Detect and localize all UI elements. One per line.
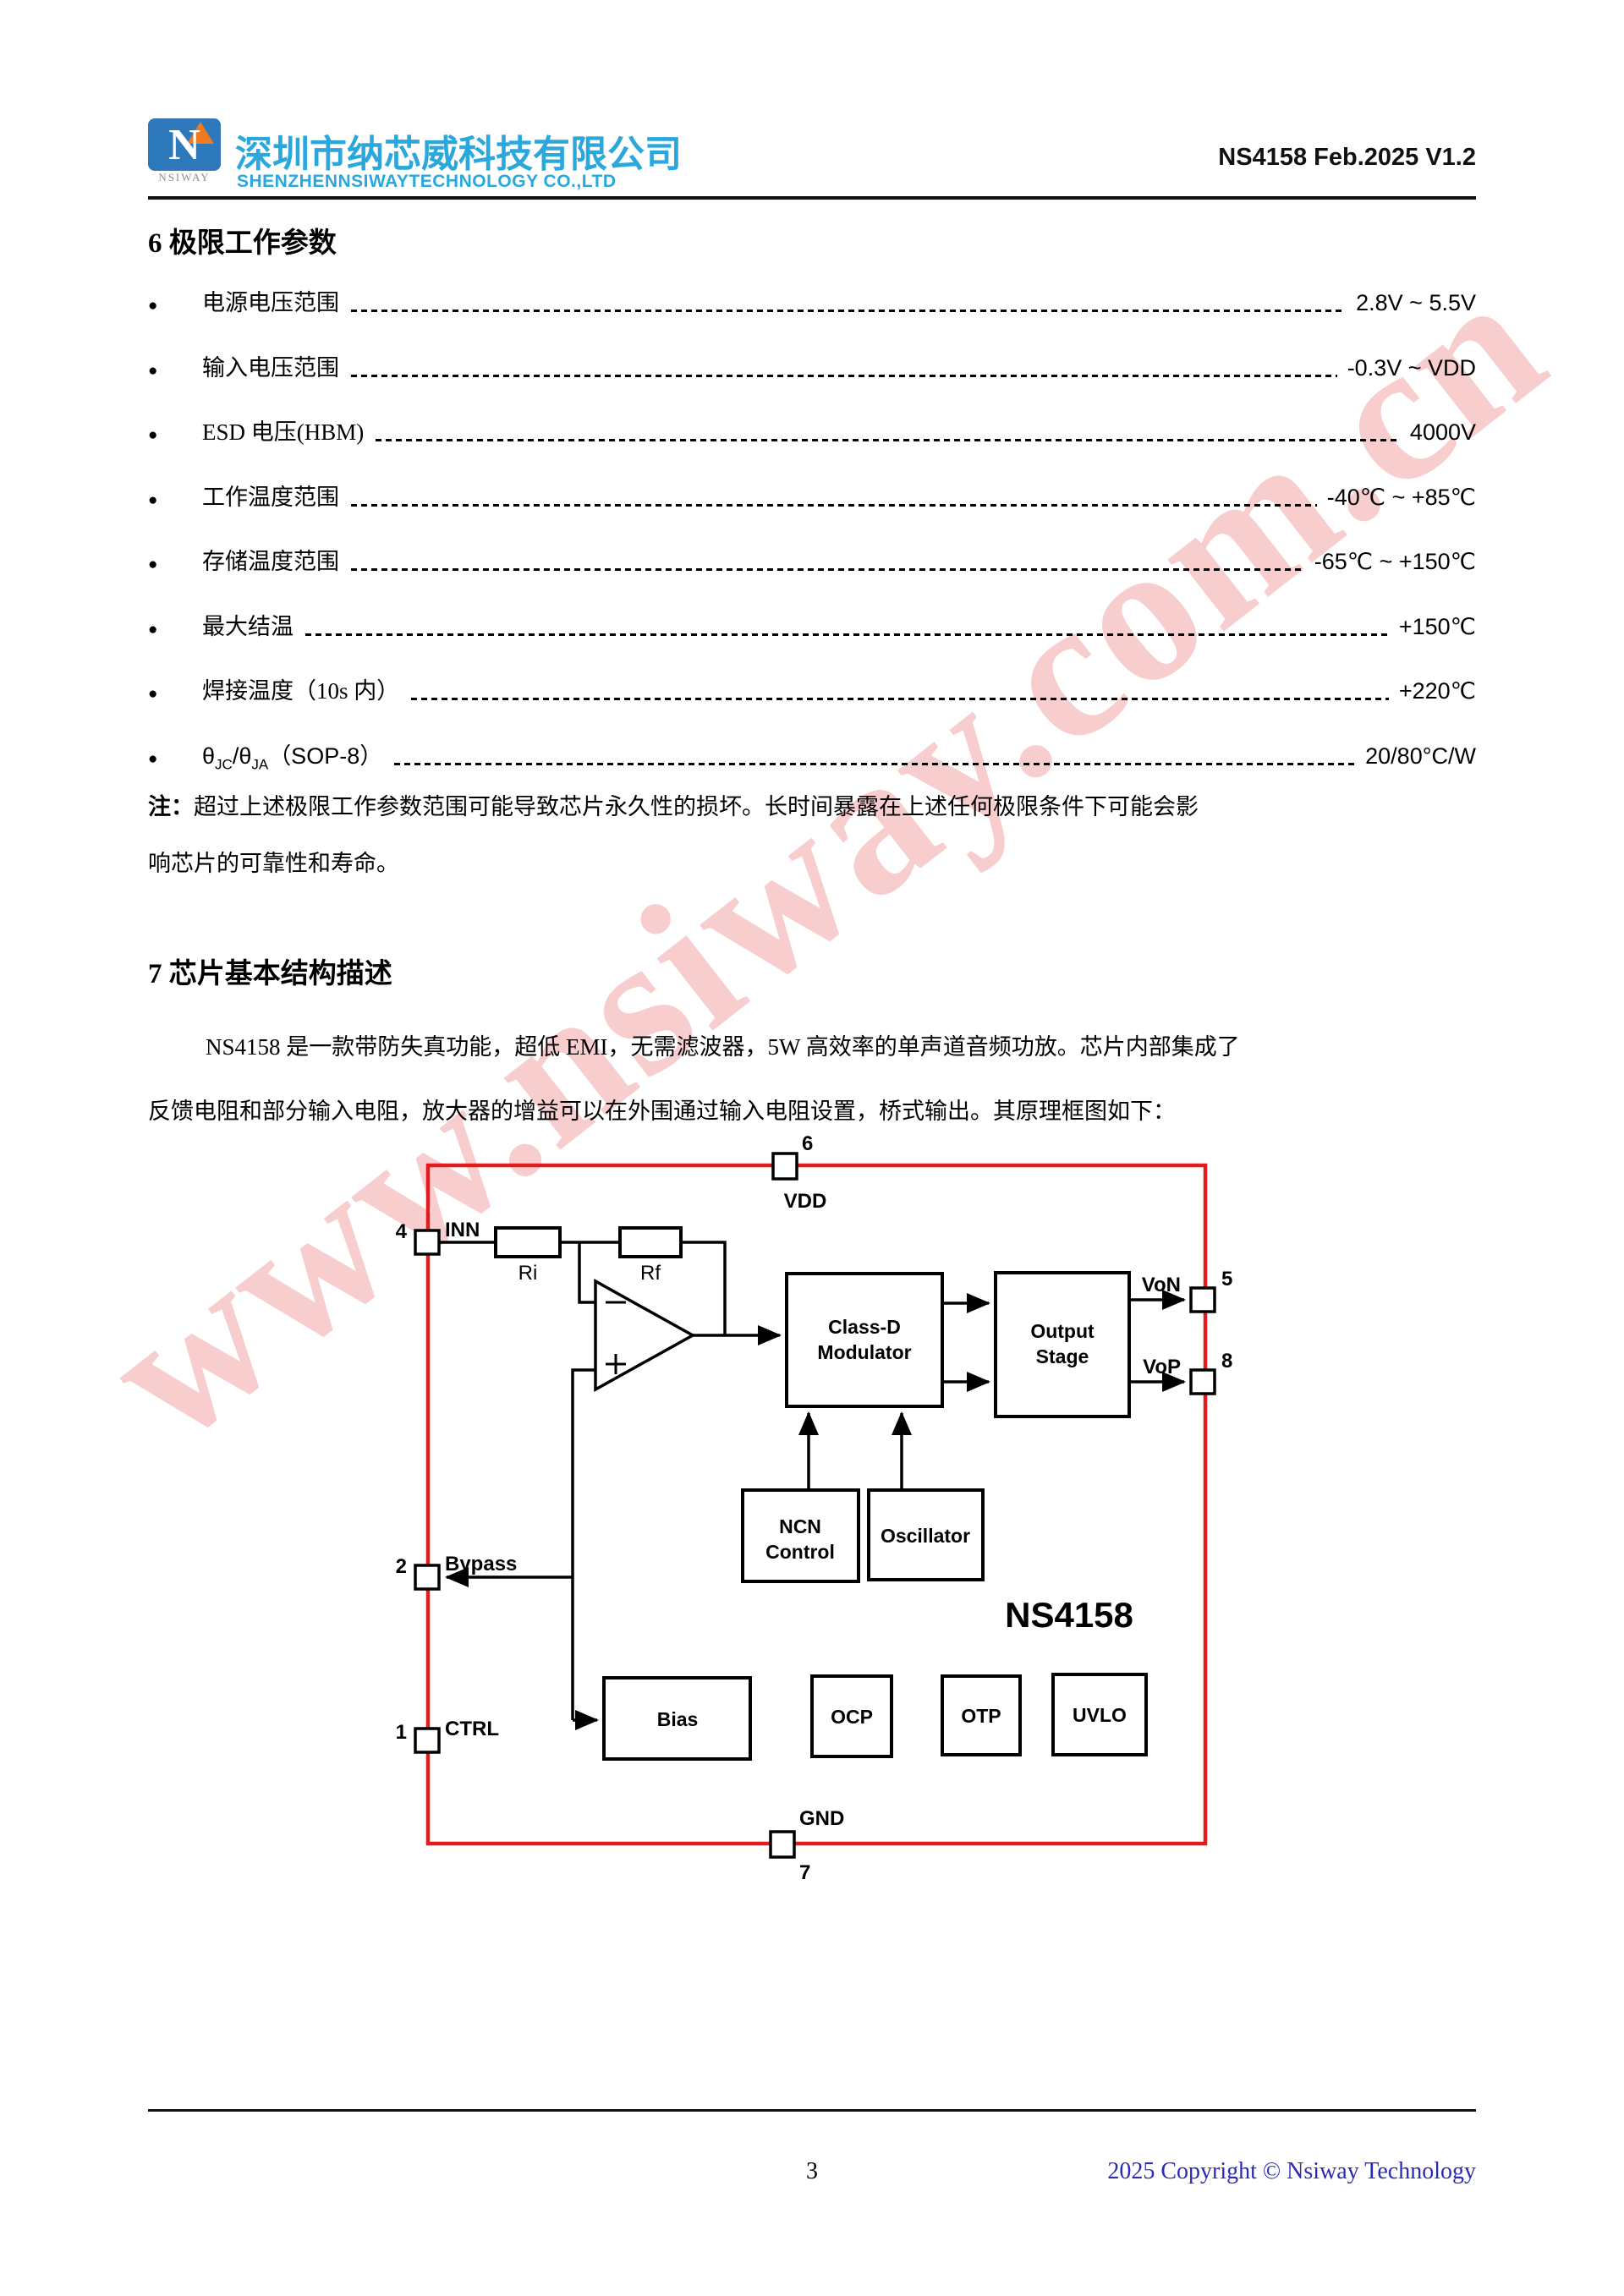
rating-label: 电源电压范围 [202,284,339,317]
rating-value: +220℃ [1399,678,1476,704]
pin-ctrl-label: CTRL [445,1718,499,1740]
pin-gnd: GND 7 [771,1807,844,1884]
pin-bypass: 2 Bypass [396,1553,518,1589]
resistor-ri [496,1228,560,1257]
rating-value: 2.8V ~ 5.5V [1356,290,1476,316]
rating-value: 20/80°C/W [1365,743,1476,770]
dotted-leader [351,504,1317,507]
section7-paragraph-line1: NS4158 是一款带防失真功能，超低 EMI，无需滤波器，5W 高效率的单声道… [206,1032,1483,1063]
block-classd-modulator [787,1274,942,1406]
dotted-leader [305,633,1389,636]
rating-row: ● 最大结温 +150℃ [148,589,1476,655]
pin-inn: 4 INN [396,1219,480,1254]
pin-bypass-label: Bypass [445,1553,517,1575]
pin-vop-number: 8 [1221,1350,1232,1373]
resistor-rf-label: Rf [640,1262,661,1285]
ratings-note-line2: 响芯片的可靠性和寿命。 [148,848,1480,879]
block-uvlo-label: UVLO [1073,1704,1127,1726]
doc-version: NS4158 Feb.2025 V1.2 [1218,144,1476,172]
copyright-text: 2025 Copyright © Nsiway Technology [1107,2158,1476,2185]
note-prefix: 注： [148,794,194,819]
pin-von: 5 VoN [1142,1268,1233,1312]
rating-value: -65℃ ~ +150℃ [1314,549,1476,575]
rating-label: ESD 电压(HBM) [202,414,364,447]
resistor-ri-label: Ri [518,1262,538,1285]
rating-label: 工作温度范围 [202,479,339,512]
pin-inn-label: INN [445,1219,480,1241]
logo-caption: NSIWAY [148,171,221,184]
rating-row: ● θJC/θJA（SOP-8） 20/80°C/W [148,719,1476,784]
ratings-note-line1: 注：超过上述极限工作参数范围可能导致芯片永久性的损坏。长时间暴露在上述任何极限条… [148,792,1480,823]
block-bias-label: Bias [657,1708,699,1730]
rating-row: ● 电源电压范围 2.8V ~ 5.5V [148,266,1476,331]
dotted-leader [394,763,1355,765]
rating-value: -40℃ ~ +85℃ [1327,485,1476,511]
pin-bypass-number: 2 [396,1555,407,1578]
rating-label: 焊接温度（10s 内） [202,672,399,705]
block-otp-label: OTP [961,1705,1001,1727]
bullet-icon: ● [148,556,202,574]
company-logo: N NSIWAY [148,118,221,184]
bullet-icon: ● [148,426,202,445]
bullet-icon: ● [148,491,202,510]
rating-label: 输入电压范围 [202,349,339,382]
rating-label: 最大结温 [202,608,294,641]
rating-row: ● 存储温度范围 -65℃ ~ +150℃ [148,524,1476,589]
pin-gnd-label: GND [799,1807,844,1830]
opamp-symbol [595,1281,693,1389]
resistor-rf [620,1228,681,1257]
dotted-leader [351,310,1346,312]
pin-von-label: VoN [1142,1274,1181,1296]
pin-vdd: 6 VDD [773,1132,826,1213]
pin-ctrl-number: 1 [396,1721,407,1744]
bullet-icon: ● [148,621,202,639]
rating-row: ● 工作温度范围 -40℃ ~ +85℃ [148,460,1476,525]
block-output-stage [996,1273,1129,1417]
section7-paragraph-line2: 反馈电阻和部分输入电阻，放大器的增益可以在外围通过输入电阻设置，桥式输出。其原理… [148,1096,1483,1127]
bullet-icon: ● [148,685,202,704]
company-name-en: SHENZHENNSIWAYTECHNOLOGY CO.,LTD [237,172,616,192]
rating-row: ● 输入电压范围 -0.3V ~ VDD [148,331,1476,396]
pin-vdd-label: VDD [784,1190,827,1213]
section7-title: 7 芯片基本结构描述 [148,951,392,991]
pin-vop-label: VoP [1143,1356,1181,1378]
rating-label: 存储温度范围 [202,543,339,576]
rating-row: ● ESD 电压(HBM) 4000V [148,395,1476,460]
dotted-leader [376,439,1400,441]
block-output-label-line2: Stage [1036,1345,1089,1367]
dotted-leader [411,698,1389,700]
bullet-icon: ● [148,362,202,381]
block-classd-label-line2: Modulator [817,1341,911,1363]
footer-rule [148,2109,1476,2112]
pin-gnd-number: 7 [799,1861,810,1884]
bullet-icon: ● [148,297,202,315]
header-rule [148,196,1476,200]
block-ncn-label-line2: Control [765,1541,835,1563]
rating-value: -0.3V ~ VDD [1347,355,1476,381]
rating-row: ● 焊接温度（10s 内） +220℃ [148,654,1476,719]
pin-ctrl: 1 CTRL [396,1718,499,1752]
pin-vop: 8 VoP [1143,1350,1232,1394]
block-ocp-label: OCP [831,1706,873,1728]
dotted-leader [351,568,1304,571]
pin-von-number: 5 [1221,1268,1232,1290]
block-output-label-line1: Output [1030,1320,1095,1342]
rating-value: +150℃ [1399,614,1476,640]
company-name-cn: 深圳市纳芯威科技有限公司 [235,123,682,178]
datasheet-page: www.nsiway.com.cn N NSIWAY 深圳市纳芯威科技有限公司 … [0,0,1624,2296]
rating-value: 4000V [1410,419,1476,446]
bullet-icon: ● [148,750,202,769]
logo-n-letter: N [148,120,221,171]
block-diagram: Ri Rf Class-D Modulator Output Stage NCN… [372,1125,1269,1911]
pin-inn-number: 4 [396,1220,408,1243]
section6-title: 6 极限工作参数 [148,220,337,260]
chip-name-label: NS4158 [1005,1595,1133,1635]
block-classd-label-line1: Class-D [828,1316,901,1338]
block-ncn-label-line1: NCN [779,1515,821,1537]
pin-vdd-number: 6 [802,1132,813,1155]
logo-square: N [148,118,221,171]
block-oscillator-label: Oscillator [881,1525,970,1547]
dotted-leader [351,375,1337,377]
ratings-list: ● 电源电压范围 2.8V ~ 5.5V ● 输入电压范围 -0.3V ~ VD… [148,266,1476,783]
rating-label: θJC/θJA（SOP-8） [202,737,382,773]
